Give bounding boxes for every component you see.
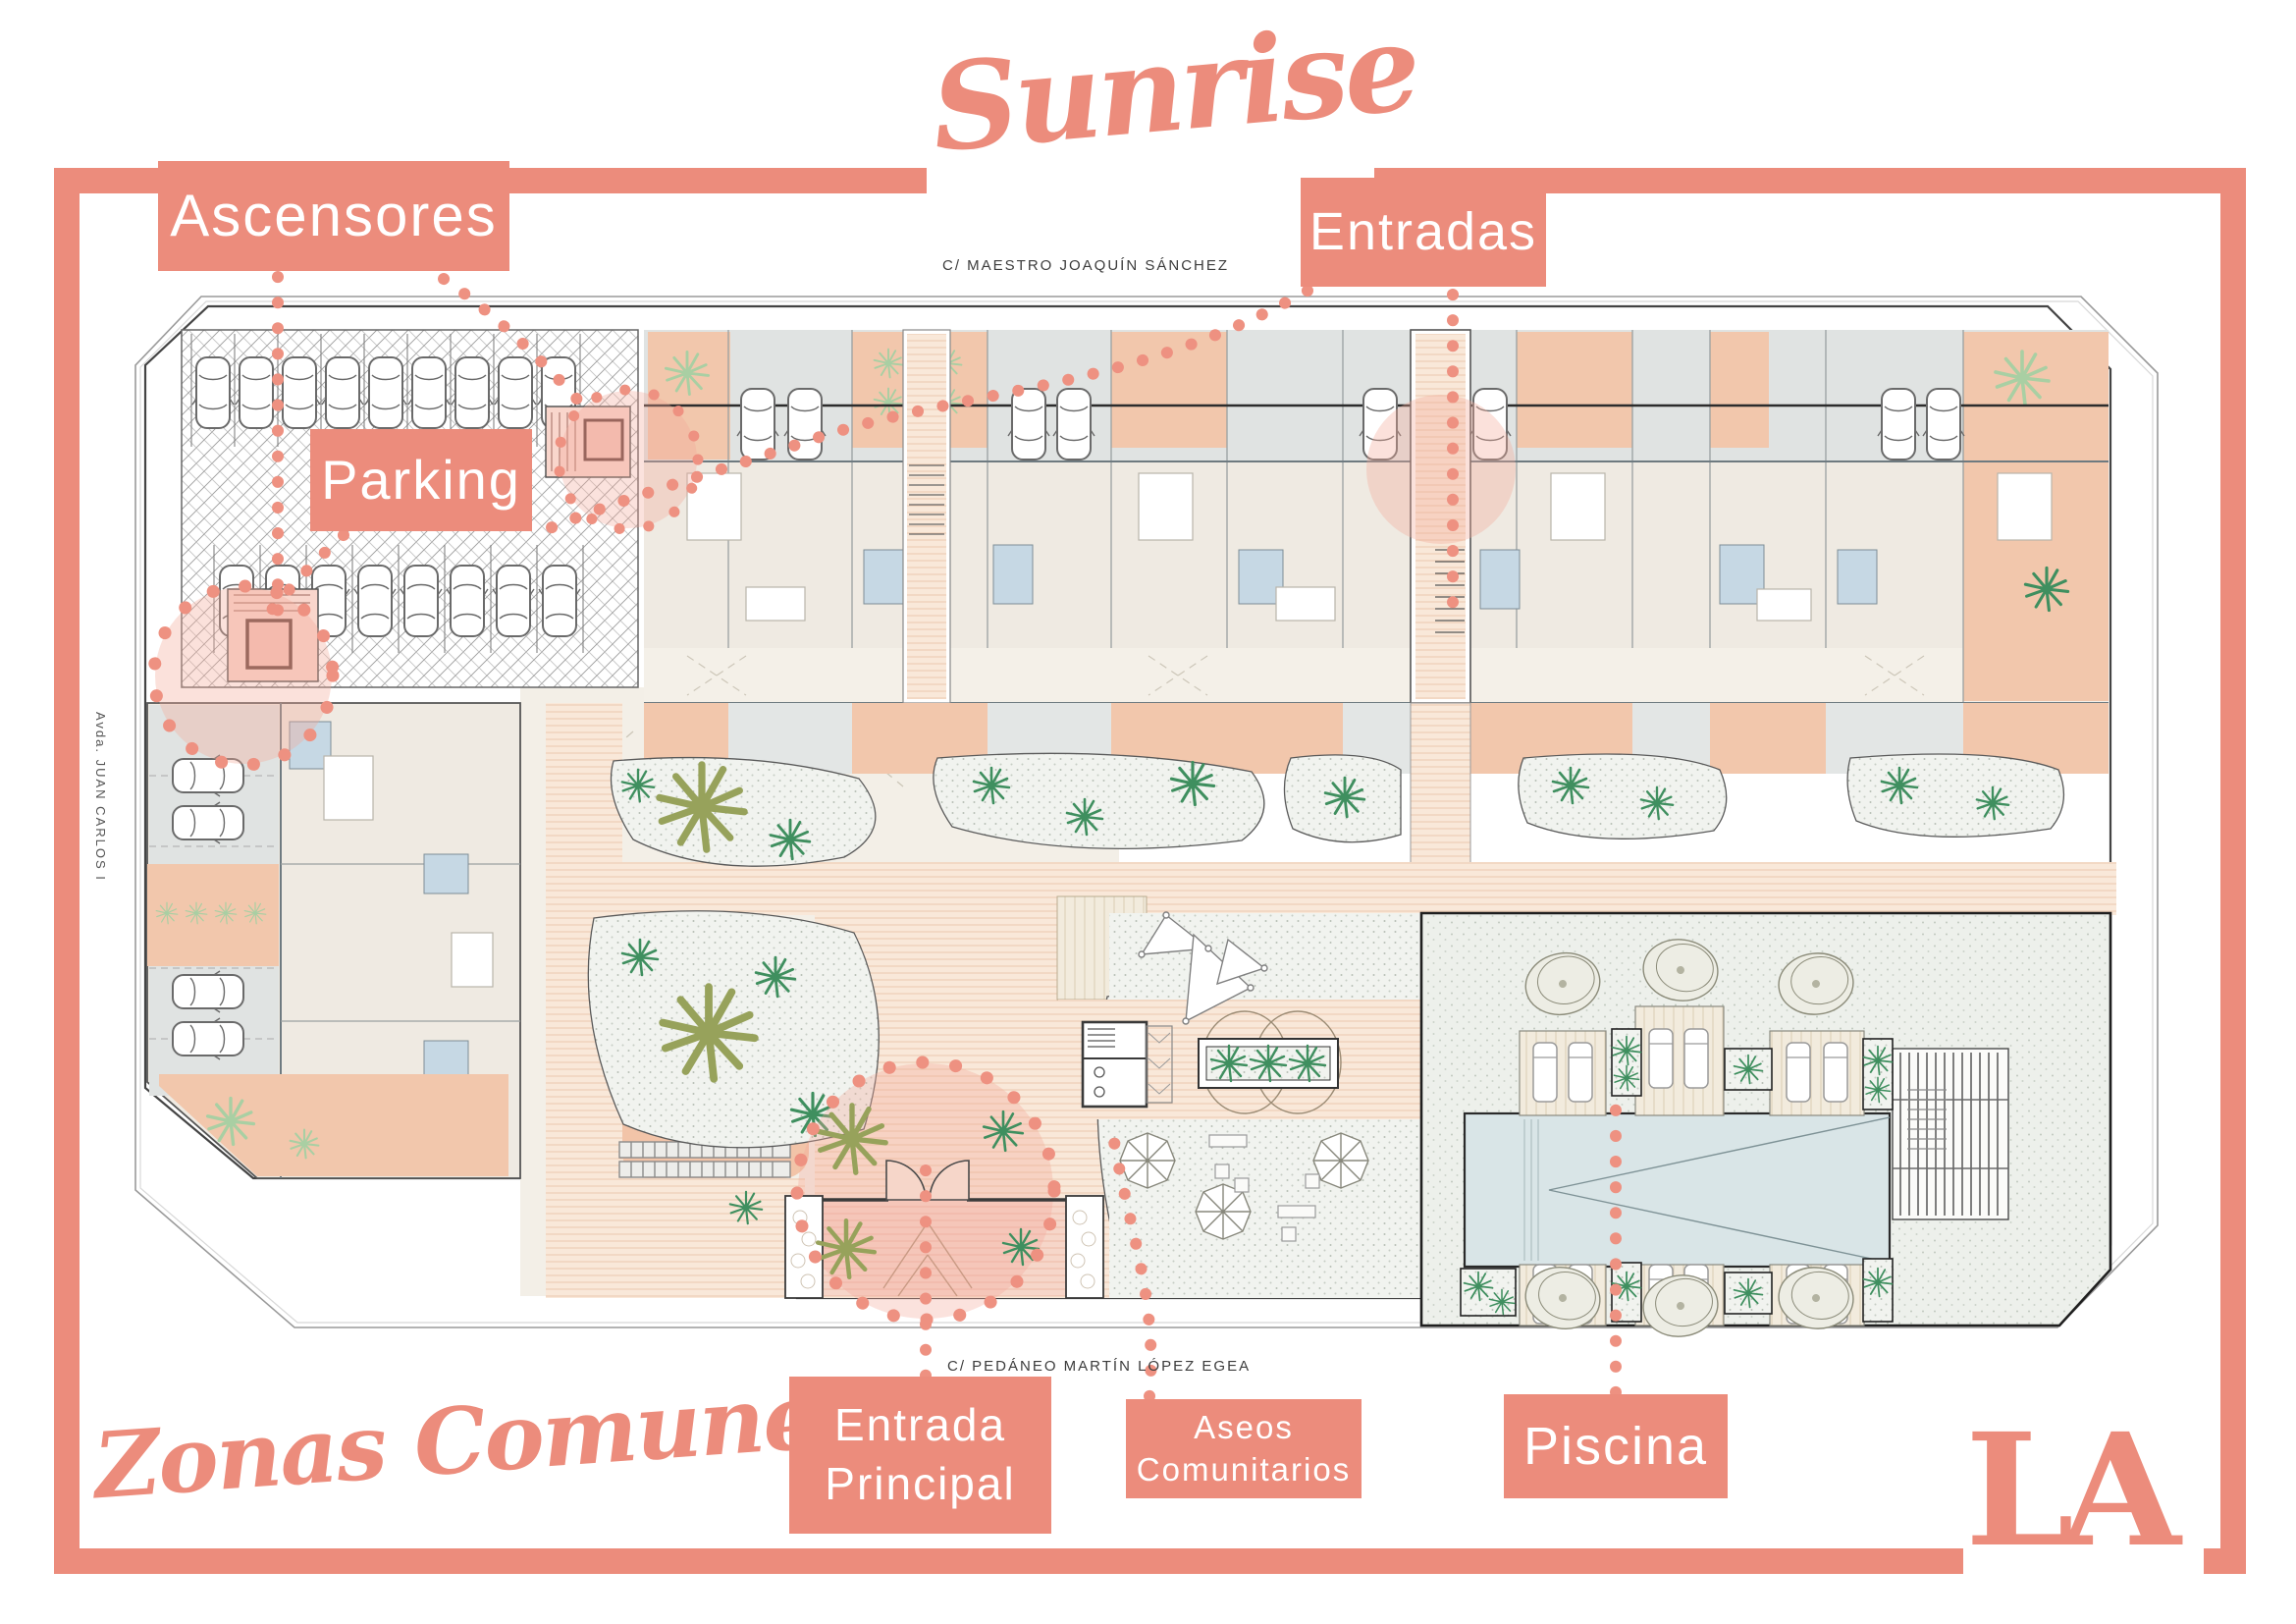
label-parking-text: Parking bbox=[321, 445, 521, 516]
label-piscina-text: Piscina bbox=[1523, 1412, 1708, 1481]
label-aseos-line1: Aseos bbox=[1194, 1407, 1294, 1449]
label-piscina: Piscina bbox=[1504, 1394, 1728, 1498]
top-apartment-block bbox=[644, 330, 2109, 703]
label-aseos-line2: Comunitarios bbox=[1137, 1449, 1351, 1491]
label-entradas-text: Entradas bbox=[1309, 197, 1537, 266]
label-entrada-principal: Entrada Principal bbox=[789, 1377, 1051, 1534]
label-entrada-principal-line2: Principal bbox=[825, 1455, 1015, 1514]
label-ascensores-text: Ascensores bbox=[170, 178, 497, 254]
plaza bbox=[1058, 912, 1421, 1298]
pool-deck bbox=[1421, 913, 2110, 1341]
pool bbox=[1465, 1113, 1890, 1267]
left-apartment-wing bbox=[147, 703, 520, 1178]
label-entrada-principal-line1: Entrada bbox=[834, 1396, 1006, 1455]
brochure-page: Sunrise Zonas Comunes LA C/ MAESTRO JOAQ… bbox=[0, 0, 2296, 1624]
label-aseos-comunitarios: Aseos Comunitarios bbox=[1126, 1399, 1362, 1498]
label-parking: Parking bbox=[310, 429, 532, 531]
street-name-north: C/ MAESTRO JOAQUÍN SÁNCHEZ bbox=[942, 257, 1229, 274]
pergola bbox=[1893, 1049, 2008, 1219]
la-logo: LA bbox=[1965, 1414, 2167, 1569]
label-ascensores: Ascensores bbox=[158, 161, 509, 271]
label-entradas: Entradas bbox=[1301, 178, 1546, 287]
entrance-corridor-a bbox=[903, 330, 950, 703]
street-name-west: Avda. JUAN CARLOS I bbox=[93, 712, 108, 874]
street-name-south: C/ PEDÁNEO MARTÍN LÓPEZ EGEA bbox=[947, 1358, 1251, 1375]
